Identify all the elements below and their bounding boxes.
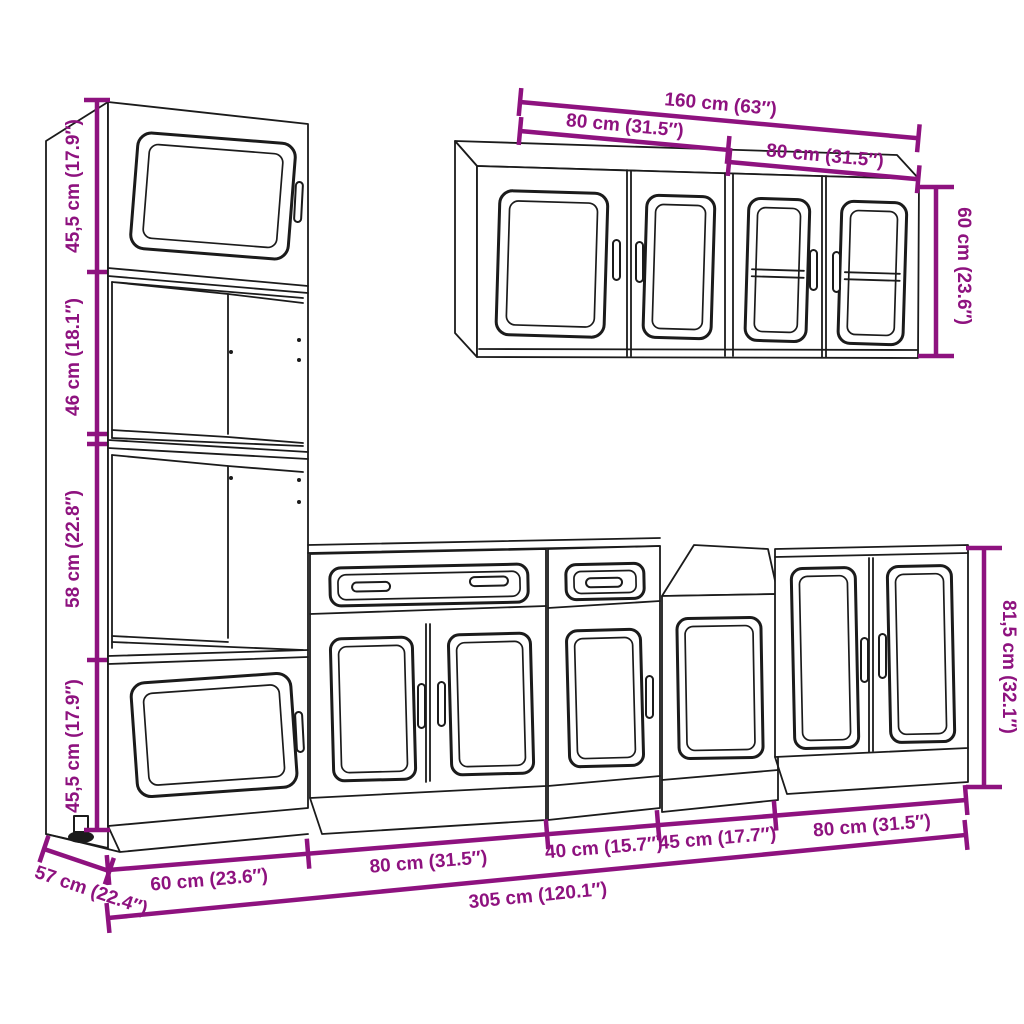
door-handle [295,712,304,752]
door-handle [879,634,886,678]
door-handle [810,250,817,290]
drawer-handle [352,582,390,592]
base-80-front [310,549,546,798]
dim-label-tall-bottom: 45,5 cm (17.9″) [63,679,84,813]
base-45-top-face [662,545,778,596]
door-handle [861,638,868,682]
dim-label-tall-lower-middle: 58 cm (22.8″) [63,490,84,608]
door-handle [613,240,620,280]
kitchen-cabinet-dimension-diagram: 45,5 cm (17.9″) 46 cm (18.1″) 58 cm (22.… [0,0,1024,1024]
dim-base-depth: 57 cm (22.4″) [32,835,159,919]
tall-cabinet [46,102,308,852]
base-cabinet-80-tall [775,545,968,794]
base-cabinet-40 [548,546,660,820]
door-handle [438,682,445,726]
dim-label-base-80-right: 80 cm (31.5″) [812,811,931,842]
drawer-handle [586,578,622,588]
door-handle [294,182,303,222]
dim-label-base-tall-height: 81,5 cm (32.1″) [998,600,1019,734]
drawer-handle [470,576,508,586]
tall-cabinet-plinth [46,816,308,852]
door-handle [636,242,643,282]
dim-label-tall-top: 45,5 cm (17.9″) [63,119,84,253]
door-handle [646,676,653,718]
dim-label-base-depth: 57 cm (22.4″) [32,862,150,920]
dim-label-tall-upper-middle: 46 cm (18.1″) [63,298,84,416]
dim-label-base-total: 305 cm (120.1″) [468,879,608,913]
dim-base-tall-height: 81,5 cm (32.1″) [966,548,1019,787]
dim-label-base-40: 40 cm (15.7″) [544,833,663,864]
dim-label-wall-height: 60 cm (23.6″) [953,207,974,325]
base-cabinet-45 [662,545,778,812]
door-handle [833,252,840,292]
door-handle [418,684,425,728]
wall-cabinet-side-panel [455,141,477,357]
dim-label-base-45: 45 cm (17.7″) [658,824,777,855]
base-cabinet-80-drawer [310,549,546,834]
diagram-canvas: 45,5 cm (17.9″) 46 cm (18.1″) 58 cm (22.… [0,0,1024,1024]
dim-wall-height: 60 cm (23.6″) [918,187,974,356]
dim-label-base-60: 60 cm (23.6″) [150,865,269,896]
dim-label-base-80: 80 cm (31.5″) [369,847,488,878]
